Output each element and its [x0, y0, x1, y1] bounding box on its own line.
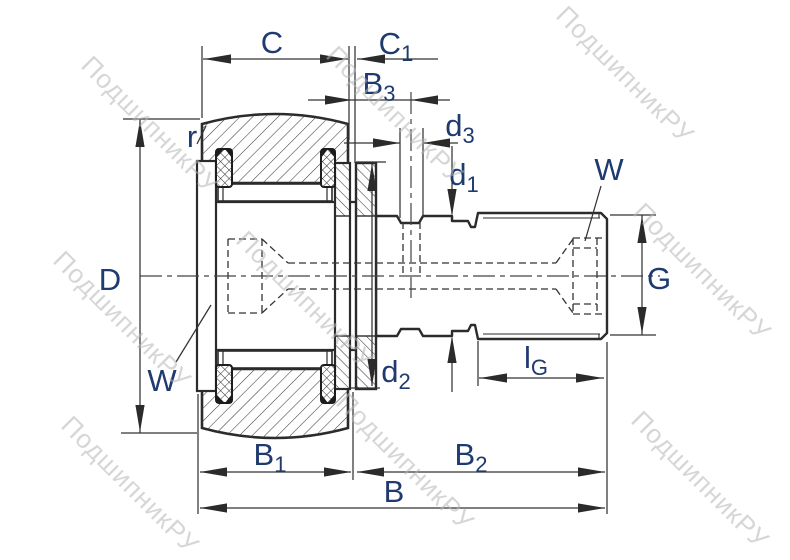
- dim-label-B: B: [384, 474, 405, 509]
- dim-label-D: D: [99, 262, 121, 297]
- dim-label-r: r: [187, 119, 197, 154]
- cam-follower-section-drawing: C C1 B3 d3 d1 d2 W W r D G lG B1 B2 B: [0, 0, 790, 547]
- seal-bottom-right: [321, 365, 335, 403]
- dim-label-lG: lG: [524, 340, 548, 380]
- dim-label-C1: C1: [379, 26, 414, 66]
- dim-label-d1: d1: [449, 157, 479, 197]
- dim-label-d2: d2: [381, 354, 411, 394]
- seal-top-left: [216, 149, 232, 187]
- dim-label-B2: B2: [455, 437, 488, 477]
- dim-label-B1: B1: [254, 437, 287, 477]
- dim-label-G: G: [647, 261, 671, 296]
- technical-drawing-stage: C C1 B3 d3 d1 d2 W W r D G lG B1 B2 B По…: [0, 0, 790, 547]
- dim-label-W-right: W: [594, 152, 624, 187]
- dim-label-B3: B3: [363, 66, 396, 106]
- seal-top-right: [321, 149, 335, 187]
- dim-label-C: C: [261, 25, 283, 60]
- dim-label-d3: d3: [445, 108, 475, 148]
- dim-label-W-left: W: [147, 363, 177, 398]
- seal-bottom-left: [216, 365, 232, 403]
